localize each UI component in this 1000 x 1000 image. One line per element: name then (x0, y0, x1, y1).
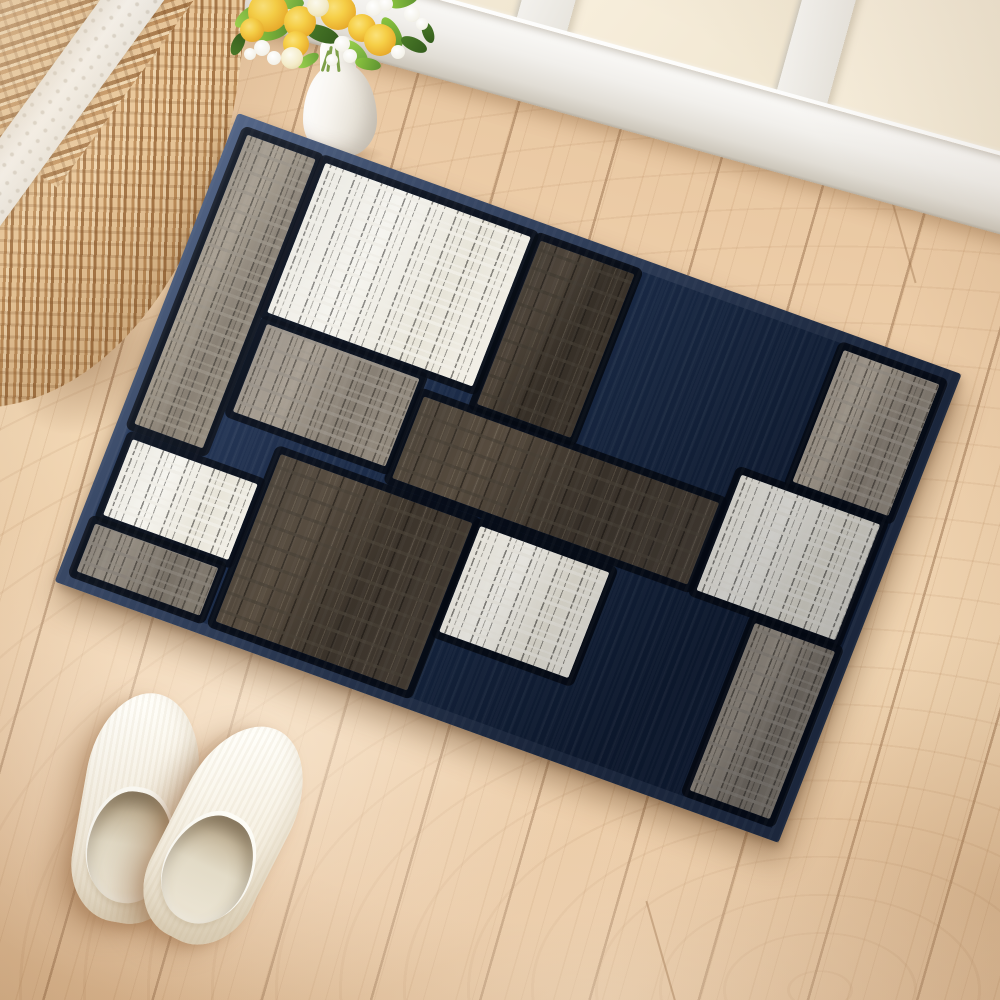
pale-rose (281, 47, 303, 69)
scene-photo (0, 0, 1000, 1000)
babys-breath-flower (267, 51, 281, 65)
babys-breath-flower (416, 18, 428, 30)
babys-breath-flower (343, 49, 357, 63)
babys-breath-flower (326, 54, 338, 66)
babys-breath-flower (391, 45, 405, 59)
yellow-rose (240, 18, 264, 42)
rug-block-white-center (439, 526, 609, 678)
babys-breath-flower (244, 48, 256, 60)
